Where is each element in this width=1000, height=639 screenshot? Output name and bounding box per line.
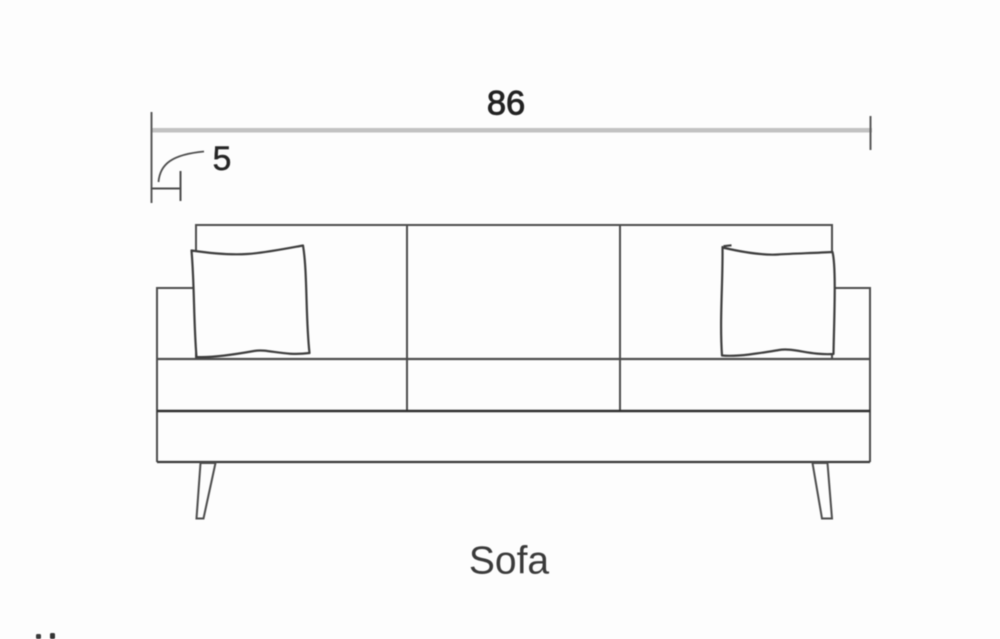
svg-text:Sofa: Sofa — [469, 540, 550, 583]
svg-text:86: 86 — [487, 85, 525, 123]
svg-text:5: 5 — [213, 140, 232, 178]
